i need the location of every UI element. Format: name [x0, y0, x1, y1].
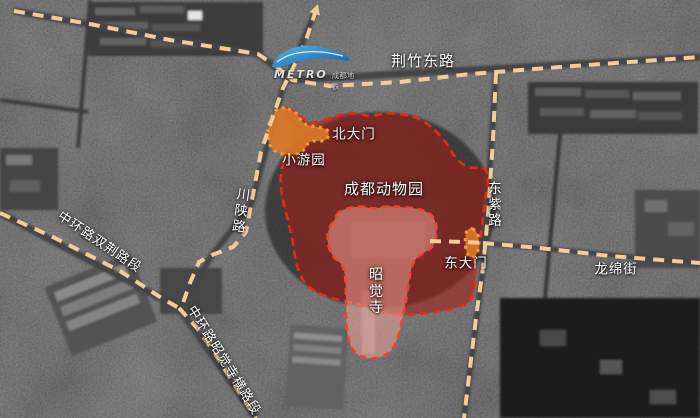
east-gate-spur: [430, 241, 483, 243]
zhonghuan-shuangjing-road: [0, 213, 179, 308]
longmian-street: [483, 243, 700, 263]
metro-chinese-text: 成都地铁: [332, 70, 358, 92]
zhonghuan-zhaojuesi-road: [179, 308, 256, 418]
metro-station-logo: METRO 成都地铁: [262, 42, 358, 86]
metro-brand-text: METRO: [274, 68, 328, 81]
satellite-map: 荆竹东路北大门小游园成都动物园川陕路中环路双荆路段东紫路东大门龙绵街昭觉寺中环路…: [0, 0, 700, 418]
